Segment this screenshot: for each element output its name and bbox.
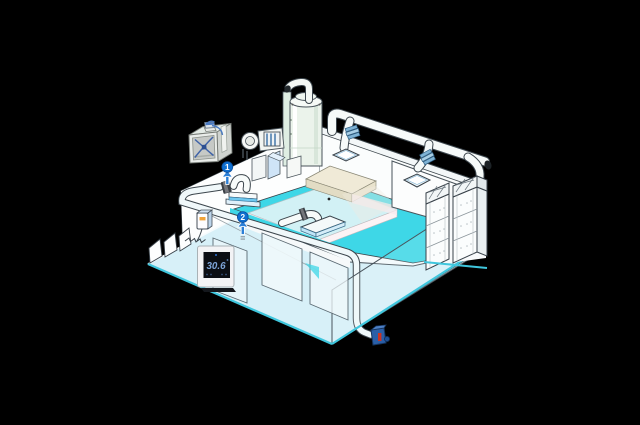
svg-text:1: 1: [225, 163, 230, 172]
svg-text:30.6: 30.6: [206, 261, 226, 272]
svg-text:2: 2: [241, 213, 246, 222]
